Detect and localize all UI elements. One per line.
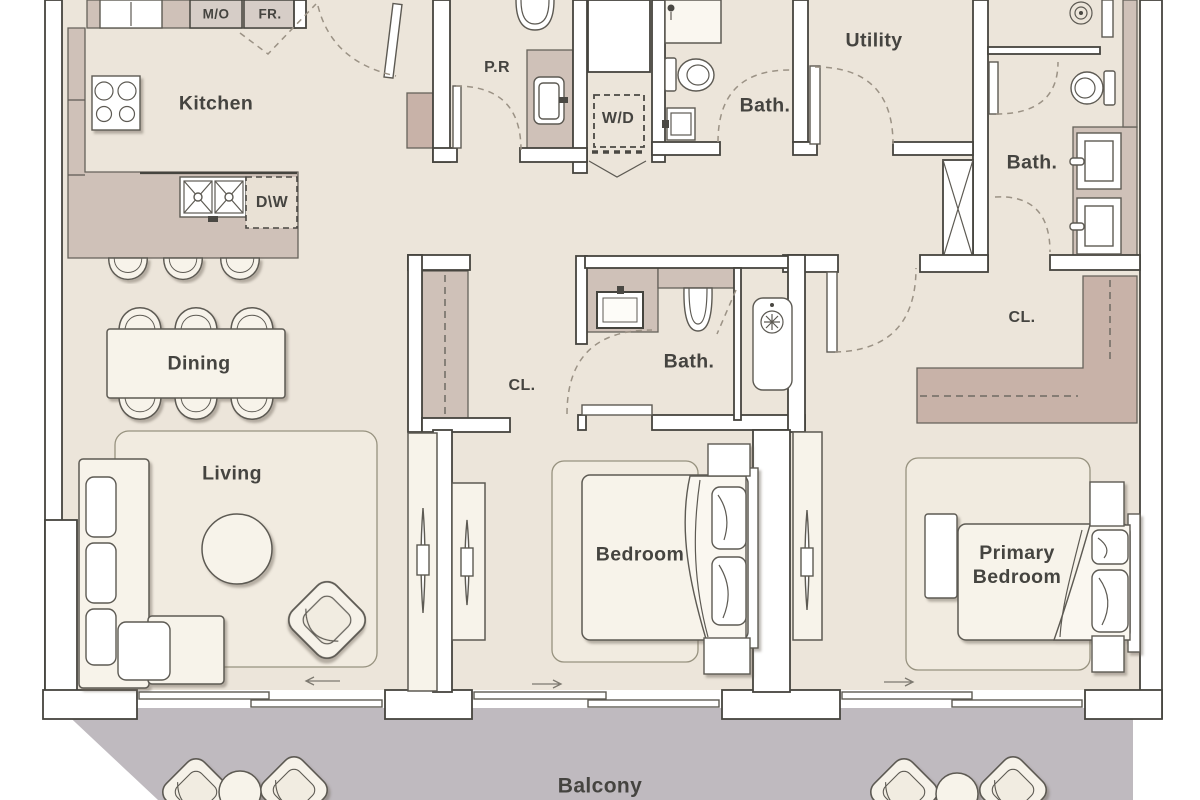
primary-bedroom-line2: Bedroom	[973, 565, 1061, 589]
bath-top-label: Bath.	[740, 96, 791, 116]
powder-room-label: P.R	[484, 60, 510, 76]
fridge-label: FR.	[259, 7, 282, 21]
room-label-primary-bedroom: Primary Bedroom	[973, 541, 1061, 589]
room-label-dining: Dining	[167, 354, 230, 374]
room-label-balcony: Balcony	[558, 776, 643, 797]
bath-middle-label: Bath.	[664, 352, 715, 372]
microwave-label: M/O	[203, 7, 230, 21]
foyer-cabinet	[407, 93, 433, 148]
room-label-living: Living	[202, 464, 262, 484]
kitchen-stove	[92, 76, 140, 130]
dishwasher-label: D\W	[256, 195, 288, 211]
bath-primary-label: Bath.	[1007, 153, 1058, 173]
kitchen-sink	[180, 177, 246, 222]
coffee-table	[202, 514, 272, 584]
utility-door-leaf	[810, 66, 820, 144]
washer-dryer-label: W/D	[602, 111, 634, 127]
primary-closet-label: CL.	[1009, 310, 1036, 326]
hall-closet	[422, 271, 468, 419]
primary-wardrobe	[793, 432, 822, 640]
room-label-kitchen: Kitchen	[179, 94, 253, 114]
primary-bedroom-line1: Primary	[973, 541, 1061, 565]
floor-plan-drawing	[0, 0, 1200, 800]
floor-plan: Kitchen M/O FR. D\W P.R W/D Bath. Utilit…	[0, 0, 1200, 800]
bar-stools	[109, 258, 260, 279]
utility-label: Utility	[846, 31, 903, 51]
hall-closet-label: CL.	[509, 378, 536, 394]
room-label-bedroom: Bedroom	[596, 545, 684, 565]
